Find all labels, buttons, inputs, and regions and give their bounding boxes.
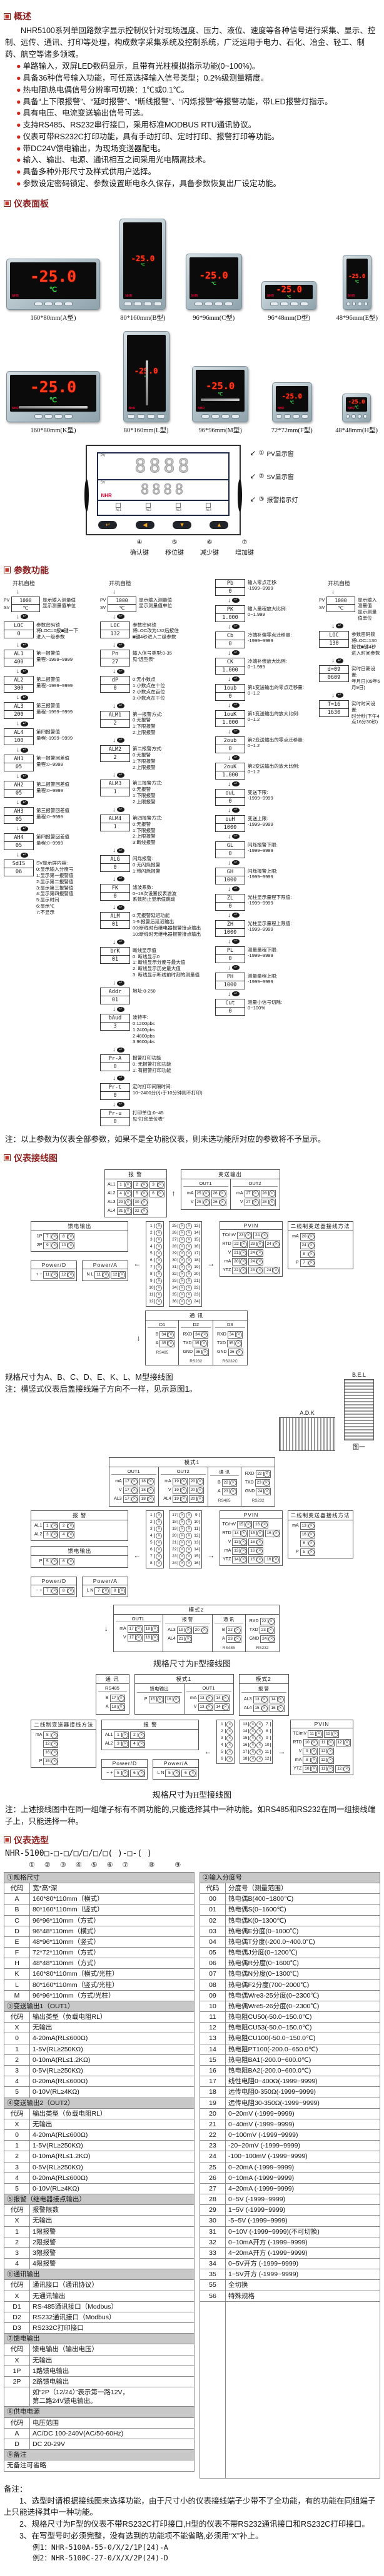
table-cell-desc: 热电偶R分度(0~1600℃) bbox=[226, 1958, 380, 1969]
bullet-text: 热电阻\热电偶信号分辨率可切换：1℃或0.1℃。 bbox=[23, 84, 189, 96]
confirm-key-icon: ↵ bbox=[336, 693, 343, 698]
param-node: Pb0输入零点迁移: -1999~9999 bbox=[215, 579, 315, 596]
column-header-code: 代码 bbox=[4, 2417, 30, 2428]
down-arrow-icon: ↓ bbox=[228, 938, 231, 945]
screw-icon: ✕ bbox=[257, 1530, 263, 1537]
screw-icon: ✕ bbox=[250, 1735, 256, 1741]
table-row: AAC/DC 100-240V(AC/50-60Hz) bbox=[4, 2428, 195, 2439]
wiring-sub-title: 报 警 bbox=[165, 1616, 210, 1623]
wiring-group: TC/mV15✕16✕ bbox=[222, 1521, 280, 1528]
param-node: CK1.000冷端补偿放大比例: 0~1.999 bbox=[215, 658, 315, 675]
screw-icon: ✕ bbox=[181, 1487, 187, 1494]
wiring-groups: RXD34✕TXD35✕GND36✕ bbox=[181, 1329, 211, 1358]
terminal: 16✕ bbox=[165, 1696, 180, 1703]
param-value: 0 bbox=[216, 1008, 245, 1015]
terminal: 34✕ bbox=[228, 1331, 243, 1339]
wiring-group: mA13✕16✕ bbox=[222, 1547, 280, 1555]
param-node: Pr-u0打印单位:0~45 见“打印单位表” bbox=[100, 1109, 211, 1126]
param-node: ALM31第三报警方式: 0:无报警 1:下限报警 2:上限报警 bbox=[100, 780, 211, 805]
wire-label: AL2 bbox=[104, 1741, 113, 1746]
wiring-group: V21✕24✕ bbox=[222, 1249, 280, 1257]
terminal-number: 28 bbox=[261, 1200, 269, 1204]
wire-label: mA bbox=[235, 1191, 243, 1196]
table-row: D3RS232C打印接口 bbox=[4, 2323, 195, 2334]
wiring-group: RXD34✕ bbox=[183, 1331, 209, 1339]
note-item: 3、在写型号时必须完整，没有选到的功能项不能省略,必须用“X”补上。 bbox=[4, 2530, 380, 2542]
table-cell-code: 12 bbox=[200, 2023, 226, 2033]
wiring-group: 16✕ bbox=[33, 1749, 94, 1756]
wiring-box-alarm: 报 警AL11✕2✕AL23✕4✕ bbox=[101, 1720, 199, 1750]
bullet-dot-icon: ● bbox=[16, 84, 21, 96]
wiring-box-comm: 通 讯D1B34✕A35✕RS485D2RXD34✕TXD35✕GND36✕RS… bbox=[145, 1310, 247, 1365]
notes-title: 备注： bbox=[4, 2484, 380, 2495]
param-value: 1630 bbox=[320, 709, 348, 716]
screw-icon: ✕ bbox=[273, 1267, 279, 1274]
instrument-caption: 160*80mm(A型) bbox=[31, 313, 76, 322]
terminal-number: 28 bbox=[171, 1244, 178, 1249]
instrument-button bbox=[358, 302, 361, 306]
strip-row: 14✕✕8 bbox=[241, 1728, 271, 1735]
strip-row: 4✕ bbox=[148, 1533, 162, 1539]
flow-connector: ↓ bbox=[113, 587, 211, 597]
instrument-button bbox=[64, 414, 73, 419]
terminal-number: 16 bbox=[44, 1750, 51, 1755]
table-cell-desc: 80*160*110mm（竖式） bbox=[30, 1905, 195, 1915]
wiring-groups: mA13✕16✕6✕P5✕ bbox=[288, 1520, 353, 1558]
flow-connector: ↓↵ bbox=[16, 612, 96, 622]
wiring-box-power-a: Power/AL N5✕6✕ bbox=[153, 1759, 199, 1780]
table-cell-desc: 热电偶Wre3-25分度(0~2300℃) bbox=[226, 1990, 380, 2001]
flow-connector: ↓↵ bbox=[228, 596, 315, 605]
wiring-group: YTZ10✕11✕12✕ bbox=[293, 1765, 350, 1773]
terminal-number: 35 bbox=[171, 1292, 178, 1297]
terminal-number: 11 bbox=[320, 1740, 328, 1745]
param-box: ouH1000 bbox=[215, 815, 245, 832]
instrument-buttons bbox=[346, 302, 368, 306]
confirm-key-icon: ↵ bbox=[232, 808, 240, 813]
table-cell-code: 22 bbox=[200, 2130, 226, 2141]
arrow-icon: ↓ bbox=[136, 1334, 140, 1342]
bullet-dot-icon: ● bbox=[16, 178, 21, 190]
terminal: 13✕ bbox=[232, 1538, 247, 1546]
terminal-number: 7 bbox=[95, 1588, 103, 1593]
terminal: 22✕ bbox=[226, 1627, 241, 1634]
wiring-diagram-abcdeklm: 报 警AL11✕2✕3✕AL24✕5✕6✕AL329✕30✕AL431✕32✕↑… bbox=[4, 1169, 380, 1365]
param-value: 1000 bbox=[216, 929, 245, 936]
table-row: X无输出 bbox=[4, 2119, 195, 2129]
instrument-reading: -25.0 bbox=[200, 270, 228, 281]
table-cell-desc: 热电偶T分度(-200.0~400.0℃) bbox=[226, 1936, 380, 1947]
wiring-row: ↓模式2OUT1mA17✕18✕V17✕18✕报 警AL319✕20✕AL421… bbox=[4, 1605, 380, 1652]
terminal: 20✕ bbox=[300, 1233, 315, 1241]
param-box: brK01 bbox=[100, 947, 130, 964]
wire-label: TXD bbox=[250, 1628, 258, 1632]
wiring-group: V9✕12✕ bbox=[293, 1748, 350, 1755]
wiring-caption-3: 规格尺寸为H型接线图 bbox=[4, 1788, 380, 1800]
wiring-sub-box: 报 警AL319✕20✕AL421✕ bbox=[163, 1615, 212, 1652]
table-cell-desc: 热电阻CU50(-50.0~150.0℃) bbox=[226, 2012, 380, 2023]
param-box: Addr01 bbox=[100, 988, 130, 1004]
overview-bullet: ●具有电压、电流变送输出信号可选。 bbox=[16, 107, 380, 119]
terminal: 6✕ bbox=[300, 1540, 315, 1547]
overview-bullet: ●支持RS485、RS232串行接口，采用标准MODBUS RTU通讯协议。 bbox=[16, 119, 380, 131]
wiring-box-mode1: 模式1馈电输出P15✕16✕OUT1mA13✕14✕V13✕14✕ bbox=[134, 1674, 234, 1715]
terminal: 16✕ bbox=[270, 1705, 285, 1712]
flow-connector: ↓↵ bbox=[113, 612, 211, 622]
wire-label: mA bbox=[293, 1758, 301, 1762]
param-desc: 0:无小数点 1:小数点在十位 2:小数点在百位 3:小数点在千位 bbox=[133, 676, 165, 701]
screw-icon: ✕ bbox=[179, 1264, 185, 1271]
confirm-key-icon: ↵ bbox=[21, 643, 28, 648]
wiring-sub-box: D1B34✕A35✕RS485 bbox=[146, 1320, 178, 1365]
table-cell-code: 00 bbox=[200, 1894, 226, 1905]
instrument-button bbox=[134, 302, 142, 306]
table-cell-desc: 160*80*110mm（横式/光柱） bbox=[30, 1969, 195, 1979]
down-arrow-icon: ↓ bbox=[16, 799, 19, 806]
terminal: 8✕ bbox=[43, 1731, 58, 1739]
table-row: M96*96*110mm（方式/光柱） bbox=[4, 1990, 195, 2001]
screw-icon: ✕ bbox=[141, 1191, 148, 1197]
instrument-button bbox=[221, 414, 230, 419]
param-desc: 第一报警方式: 0:无报警 1:下限报警 2:上限报警 bbox=[133, 711, 163, 736]
wiring-sub-title: D1 bbox=[148, 1322, 176, 1328]
param-name: FK bbox=[101, 884, 129, 893]
flow-connector: ↓↵ bbox=[228, 832, 315, 841]
wiring-box-two-wire: 二线制变送器接线方法mA20✕24✕8✕P7✕ bbox=[288, 1221, 353, 1269]
strip-row: 1✕ bbox=[218, 1721, 233, 1728]
brand-logo: NHR bbox=[198, 407, 205, 410]
wiring-group: V19✕20✕ bbox=[163, 1487, 204, 1494]
bullet-dot-icon: ● bbox=[16, 119, 21, 131]
wiring-sub-title: D2 bbox=[181, 1322, 211, 1328]
wiring-stack: 报 警AL11✕2✕AL23✕4✕馈电输出P5✕6✕Power/D− +7✕8✕… bbox=[31, 1510, 128, 1601]
flow-connector: ↓↵ bbox=[228, 701, 315, 710]
param-name: bAud bbox=[101, 1014, 129, 1023]
wire-label: P bbox=[33, 1759, 42, 1763]
table-cell-desc: 如“2P（12/24）”表示第一路12V， 第二路24V馈电输出。 bbox=[30, 2387, 195, 2407]
down-arrow-icon: ↓ bbox=[228, 833, 231, 840]
confirm-key-icon: ↵ bbox=[117, 703, 124, 708]
terminal: 18✕ bbox=[139, 1487, 154, 1494]
table-row: 02热电偶K(0~1300℃) bbox=[200, 1915, 380, 1926]
wiring-group: RXD22✕ bbox=[245, 1470, 271, 1478]
screw-icon: ✕ bbox=[327, 1766, 333, 1772]
wiring-group: mA20✕ bbox=[290, 1233, 351, 1241]
table-row: 17线性电阻0~400Ω(-1999~9999) bbox=[200, 2076, 380, 2087]
terminal: 25✕ bbox=[195, 1199, 210, 1206]
terminal: 11✕ bbox=[308, 1730, 323, 1738]
terminal-number: 34 bbox=[228, 1332, 236, 1337]
param-value: 1.000 bbox=[216, 614, 245, 622]
down-arrow-icon: ↓ bbox=[113, 806, 116, 813]
terminal-number: 6 bbox=[148, 1547, 155, 1552]
terminal-number: 16 bbox=[249, 1548, 256, 1553]
terminal: 26✕ bbox=[211, 1199, 226, 1206]
confirm-key-icon: ↵ bbox=[117, 614, 124, 619]
group-header-cell: ⑧供电电源 bbox=[4, 2407, 195, 2417]
param-name: ALM bbox=[101, 913, 129, 921]
screw-icon: ✕ bbox=[156, 1540, 162, 1546]
terminal: 14✕ bbox=[232, 1556, 247, 1563]
screw-icon: ✕ bbox=[240, 1267, 246, 1274]
screw-icon: ✕ bbox=[138, 1732, 144, 1738]
param-box: Pr-u0 bbox=[100, 1109, 130, 1126]
param-desc: 第一报警值 量程:-1999~9999 bbox=[36, 650, 73, 663]
instrument-cell: -25.0℃NHR96*96mm(C型) bbox=[186, 254, 242, 322]
terminal: 19✕ bbox=[177, 1627, 192, 1634]
wiring-stack: 报 警AL11✕2✕AL23✕4✕Power/D− +5✕6✕Power/AL … bbox=[101, 1720, 199, 1783]
param-value: 0 bbox=[101, 893, 129, 900]
instrument-buttons bbox=[346, 414, 367, 419]
terminal-number: 22 bbox=[223, 1480, 230, 1485]
wiring-sub-foot: RS485 bbox=[148, 1350, 176, 1355]
param-box: ouL0 bbox=[215, 789, 245, 806]
key-callout: ⑤移位键 bbox=[165, 539, 184, 557]
table-cell-code: X bbox=[4, 2216, 30, 2226]
wiring-box-title: PVIN bbox=[220, 1511, 281, 1519]
screw-icon: ✕ bbox=[179, 1540, 185, 1546]
brand-logo: NHR bbox=[12, 407, 19, 410]
wiring-groups: AL11✕2✕AL23✕4✕ bbox=[31, 1520, 128, 1540]
param-desc: 第二报警方式: 0:无报警 1:下限报警 2:上限报警 bbox=[133, 745, 163, 770]
screw-icon: ✕ bbox=[179, 1526, 185, 1532]
group-header-cell: ⑦馈电输出 bbox=[4, 2334, 195, 2344]
instrument-button bbox=[34, 414, 43, 419]
callout-number: ⑦ bbox=[242, 539, 248, 546]
terminal: 12✕ bbox=[336, 1739, 351, 1746]
terminal-number: 10 bbox=[193, 1520, 200, 1524]
wire-label: AL4 bbox=[107, 1209, 116, 1213]
down-arrow-icon: ↓ bbox=[16, 746, 19, 753]
table-cell-desc: 0~10V (-1999~9999)(不可切换) bbox=[226, 2226, 380, 2237]
wiring-sub-title: OUT2 bbox=[233, 1181, 278, 1187]
wire-label: B bbox=[100, 1696, 109, 1700]
sv-label: SV bbox=[100, 606, 108, 610]
instrument-button bbox=[346, 414, 350, 419]
overview-bullet-list: ●单路输入，双屏LED数码显示，且带有光柱模拟指示功能(0~100%)。●具备3… bbox=[16, 61, 380, 189]
table-cell-desc: 4~20mA开方 (-1999~9999) bbox=[226, 2247, 380, 2258]
terminal-number: 17 bbox=[128, 1627, 136, 1631]
wiring-groups: B17✕A18✕ bbox=[98, 1693, 127, 1713]
pv-value: 1000 bbox=[11, 597, 40, 605]
screw-icon: ✕ bbox=[226, 1721, 233, 1728]
wiring-subs: RS485B17✕A18✕ bbox=[96, 1684, 129, 1714]
table-cell-desc: 热电阻BA2(-200.0~600.0℃) bbox=[226, 2065, 380, 2076]
param-value: 0 bbox=[216, 693, 245, 700]
param-desc: 报警打印功能 0: 无报警打印功能 1: 有报警打印功能 bbox=[133, 1054, 171, 1074]
down-arrow-icon: ↓ bbox=[228, 702, 231, 709]
screw-icon: ✕ bbox=[261, 1522, 268, 1528]
terminal: 8✕ bbox=[303, 1756, 318, 1764]
table-row: 20-10mA(RL≤1.2KΩ) bbox=[4, 2151, 195, 2162]
terminal: 12✕ bbox=[319, 1748, 334, 1755]
model-code: NHR-5100□-□-□/□/□/□/□( )-□-( ) bbox=[5, 1849, 380, 1858]
param-name: 2ouK bbox=[216, 763, 245, 771]
bullet-dot-icon: ● bbox=[16, 166, 21, 178]
wire-label: mA bbox=[290, 1523, 299, 1528]
table-cell-code: 29 bbox=[200, 2205, 226, 2216]
instrument-button bbox=[201, 414, 210, 419]
terminal-number: 8 bbox=[148, 1272, 155, 1276]
screw-icon: ✕ bbox=[257, 1241, 263, 1247]
wiring-box-title: Power/A bbox=[83, 1261, 128, 1269]
screw-icon: ✕ bbox=[157, 1697, 163, 1703]
wire-label: AL1 bbox=[33, 1523, 42, 1528]
wiring-groups: 1P7✕8✕2P9✕10✕ bbox=[31, 1231, 128, 1251]
confirm-key-icon: ↵ bbox=[232, 834, 240, 839]
wiring-box-alarm: 报 警AL11✕2✕AL23✕4✕ bbox=[31, 1510, 128, 1541]
strip-row: 35✕✕23 bbox=[171, 1292, 200, 1298]
param-value: 0 bbox=[101, 1118, 129, 1126]
wire-label: RXD bbox=[250, 1619, 259, 1623]
param-name: AH1 bbox=[4, 755, 33, 763]
param-desc: 定时打印间隔时间: 10~2400分(小于10分钟则不打印) bbox=[133, 1083, 203, 1096]
param-value: 05 bbox=[4, 842, 33, 850]
instrument-photo: -25.0℃NHR bbox=[186, 254, 242, 310]
param-value: 1000 bbox=[216, 981, 245, 989]
strip-row: 12✕ bbox=[148, 1299, 162, 1305]
selection-table-left: ①规格尺寸代码宽*高*深A160*80*110mm（横式）B80*160*110… bbox=[4, 1872, 195, 2472]
terminal-number: 13 bbox=[199, 1705, 206, 1709]
strip-row: 7✕ bbox=[148, 1553, 162, 1560]
terminal: 11✕ bbox=[94, 1271, 109, 1279]
terminal-number: 7 bbox=[44, 1234, 51, 1239]
param-node: 1ouK1.000第1变送输出的放大比例: 0~1.2 bbox=[215, 710, 315, 727]
terminal-number: 2 bbox=[60, 1523, 68, 1528]
terminal-number: 24 bbox=[254, 1233, 261, 1237]
terminal-number: 8 bbox=[111, 1588, 119, 1593]
terminal-number: 31 bbox=[118, 1209, 125, 1213]
confirm-key-icon: ↵ bbox=[117, 1048, 124, 1053]
pv-value: 1000 bbox=[108, 597, 136, 605]
strip-row: 13✕✕7 bbox=[241, 1721, 271, 1728]
flow-connector: ↓↵ bbox=[113, 1100, 211, 1109]
param-name: Addr bbox=[101, 988, 129, 996]
terminal-number: 3 bbox=[218, 1736, 226, 1740]
wiring-sub-box: RS485B17✕A18✕ bbox=[96, 1684, 129, 1714]
param-name: 2oub bbox=[216, 737, 245, 745]
terminal: 10✕ bbox=[303, 1739, 318, 1746]
screw-icon: ✕ bbox=[68, 1272, 74, 1278]
table-cell-desc: 热电偶N分度(0~1300℃) bbox=[226, 1969, 380, 1979]
table-row: X无输出 bbox=[4, 2355, 195, 2365]
screw-icon: ✕ bbox=[156, 1244, 162, 1250]
wire-label: P bbox=[290, 1261, 299, 1265]
down-arrow-icon: ↓ bbox=[228, 807, 231, 814]
table-row: 16热电阻BA2(-200.0~600.0℃) bbox=[200, 2065, 380, 2076]
wiring-box-two-wire: 二线制变送器接线方法mA8✕12✕16✕P15✕ bbox=[31, 1720, 96, 1768]
wiring-row: ↓通 讯D1B34✕A35✕RS485D2RXD34✕TXD35✕GND36✕R… bbox=[4, 1310, 380, 1365]
screw-icon: ✕ bbox=[186, 1223, 192, 1229]
terminal-number: 17 bbox=[128, 1635, 136, 1640]
wiring-sub-foot: RS232 bbox=[243, 1499, 273, 1503]
strip-row: 4✕ bbox=[148, 1244, 162, 1250]
terminal: 34✕ bbox=[159, 1331, 174, 1339]
strip-row: 3✕ bbox=[218, 1735, 233, 1741]
screw-icon: ✕ bbox=[173, 1697, 179, 1703]
terminal-number: 4 bbox=[148, 1533, 155, 1538]
screw-icon: ✕ bbox=[240, 1548, 246, 1554]
table-cell-desc: 160*80*110mm（横式） bbox=[30, 1894, 195, 1905]
screw-icon: ✕ bbox=[179, 1547, 185, 1553]
param-node: AH405第四报警回差值 量程:0~9999 bbox=[4, 833, 96, 850]
table-cell-desc: 0-5V(RL≥250KΩ) bbox=[30, 2065, 195, 2076]
wiring-box-title: 模式2 bbox=[240, 1675, 288, 1684]
table-cell-code: 5 bbox=[4, 2087, 30, 2098]
flow-connector: ↓↵ bbox=[113, 846, 211, 855]
table-row: 11热电阻CU50(-50.0~150.0℃) bbox=[200, 2012, 380, 2023]
section-title: 概述 bbox=[14, 10, 31, 22]
screw-icon: ✕ bbox=[179, 1292, 185, 1298]
strip-row: 5✕ bbox=[148, 1251, 162, 1257]
table-row: X无输出 bbox=[4, 2216, 195, 2226]
wiring-group: B22✕ bbox=[216, 1627, 241, 1634]
table-cell-code: 09 bbox=[200, 1990, 226, 2001]
instrument-screen: -25.0℃NHR bbox=[189, 257, 238, 299]
wire-label: TXD bbox=[183, 1341, 191, 1345]
wiring-row: 馈电输出1P7✕8✕2P9✕10✕Power/D+ −11✕12✕Power/A… bbox=[4, 1221, 380, 1307]
screw-icon: ✕ bbox=[179, 1285, 185, 1291]
wiring-box-title: 报 警 bbox=[102, 1720, 198, 1730]
table-cell-desc: 72*72*110mm（方式） bbox=[30, 1948, 195, 1958]
panel-photo-row-1: -25.0℃NHR160*80mm(A型)-25.0℃NHR80*160mm(B… bbox=[6, 219, 378, 322]
wiring-sub-foot: RS485 bbox=[210, 1499, 239, 1503]
strip-row: 6✕ bbox=[148, 1547, 162, 1553]
table-row: 13热电阻CU100(-50.0~150.0℃) bbox=[200, 2033, 380, 2044]
wiring-groups: RXD22✕TXD23✕GND24✕ bbox=[243, 1469, 273, 1497]
screw-icon: ✕ bbox=[179, 1230, 185, 1236]
screw-icon: ✕ bbox=[51, 1558, 58, 1565]
confirm-key-icon: ↵ bbox=[21, 669, 28, 674]
wiring-box-title: Power/D bbox=[31, 1577, 76, 1585]
screw-icon: ✕ bbox=[186, 1278, 192, 1284]
wire-label: GND bbox=[245, 1489, 255, 1494]
terminal-number: 20 bbox=[233, 1259, 240, 1264]
terminal-number: 8 bbox=[148, 1561, 155, 1565]
param-name: AH4 bbox=[4, 834, 33, 842]
wiring-groups: mA17✕18✕V17✕18✕ bbox=[116, 1623, 161, 1643]
screw-icon: ✕ bbox=[51, 1588, 58, 1594]
screw-icon: ✕ bbox=[156, 1519, 162, 1525]
screw-icon: ✕ bbox=[131, 1479, 138, 1485]
wiring-group: 24✕ bbox=[290, 1242, 351, 1249]
screw-icon: ✕ bbox=[241, 1530, 247, 1537]
screw-icon: ✕ bbox=[103, 1272, 109, 1278]
table-cell-desc: 热电阻PT100(-200.0~650.0℃) bbox=[226, 2044, 380, 2054]
terminal: 24✕ bbox=[300, 1242, 315, 1249]
screw-icon: ✕ bbox=[181, 1479, 187, 1485]
instrument-photo: -25.0℃NHR bbox=[6, 259, 100, 310]
confirm-key-icon: ↵ bbox=[232, 965, 240, 970]
wiring-box-power-d: Power/D− +7✕8✕ bbox=[31, 1577, 77, 1597]
wire-label: RTD bbox=[222, 1242, 231, 1246]
terminal-number: 13 bbox=[301, 1523, 308, 1528]
screw-icon: ✕ bbox=[316, 1731, 322, 1737]
instrument-button bbox=[205, 302, 213, 306]
terminal-number: 5 bbox=[134, 1191, 141, 1196]
param-box: CK1.000 bbox=[215, 658, 245, 675]
screw-icon: ✕ bbox=[68, 1242, 74, 1249]
screw-icon: ✕ bbox=[268, 1618, 275, 1625]
param-name: ALM3 bbox=[101, 780, 129, 788]
wiring-box-two-wire: 二线制变送器接线方法mA13✕16✕6✕P5✕ bbox=[288, 1510, 353, 1558]
screw-icon: ✕ bbox=[138, 1741, 144, 1747]
wiring-groups: mA17✕18✕V17✕18✕AL317✕18✕ bbox=[111, 1476, 156, 1505]
terminal-number: 24 bbox=[249, 1259, 256, 1264]
screw-icon: ✕ bbox=[308, 1540, 315, 1547]
flow-connector: ↓↵ bbox=[228, 753, 315, 763]
terminal-number: 5 bbox=[148, 1251, 155, 1256]
